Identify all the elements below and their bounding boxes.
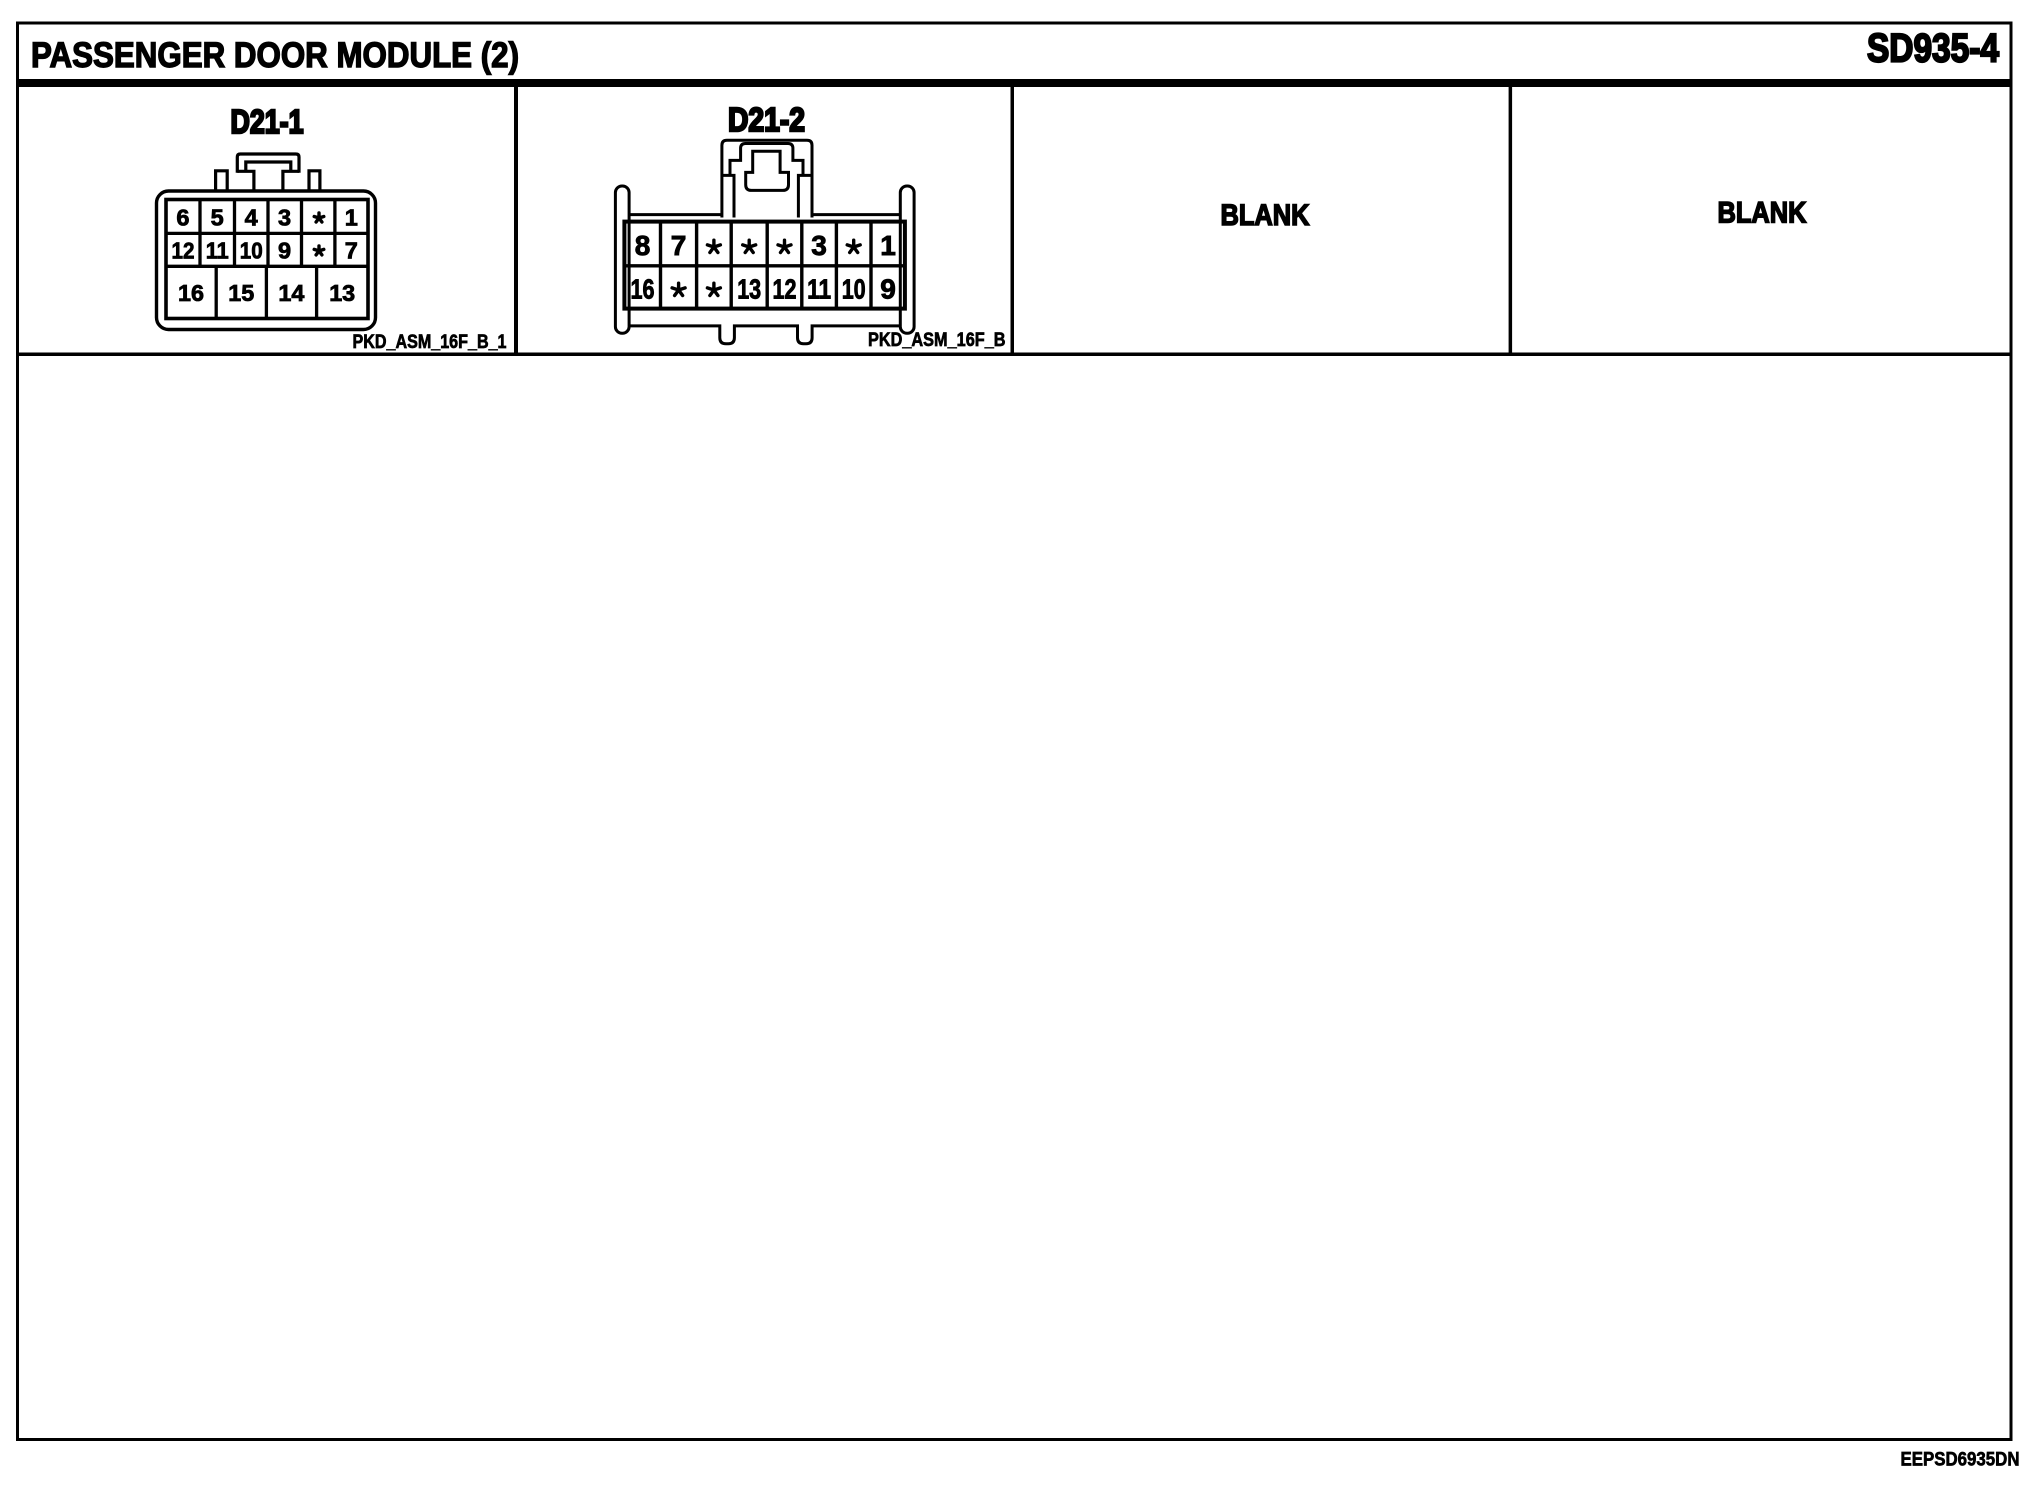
- svg-text:7: 7: [345, 238, 358, 264]
- svg-text:7: 7: [671, 230, 687, 261]
- svg-text:BLANK: BLANK: [1718, 197, 1807, 230]
- svg-text:11: 11: [807, 274, 831, 305]
- svg-text:15: 15: [228, 280, 254, 306]
- svg-text:12: 12: [773, 274, 797, 305]
- svg-text:8: 8: [635, 230, 651, 261]
- svg-text:PKD_ASM_16F_B_1: PKD_ASM_16F_B_1: [353, 332, 507, 353]
- svg-text:9: 9: [880, 274, 896, 305]
- svg-text:5: 5: [211, 204, 224, 230]
- svg-text:3: 3: [278, 204, 291, 230]
- svg-text:PASSENGER DOOR MODULE (2): PASSENGER DOOR MODULE (2): [31, 36, 519, 75]
- svg-text:10: 10: [240, 238, 263, 264]
- svg-text:16: 16: [631, 274, 655, 305]
- svg-text:14: 14: [278, 280, 304, 306]
- svg-text:EEPSD6935DN: EEPSD6935DN: [1901, 1449, 2020, 1471]
- svg-text:PKD_ASM_16F_B: PKD_ASM_16F_B: [868, 330, 1006, 351]
- svg-text:16: 16: [178, 280, 204, 306]
- svg-text:12: 12: [172, 238, 195, 264]
- svg-text:11: 11: [206, 238, 229, 264]
- svg-text:1: 1: [880, 230, 896, 261]
- svg-text:13: 13: [737, 274, 761, 305]
- svg-text:10: 10: [842, 274, 866, 305]
- svg-text:D21-2: D21-2: [728, 101, 805, 138]
- svg-text:3: 3: [811, 230, 827, 261]
- svg-text:BLANK: BLANK: [1221, 199, 1310, 232]
- svg-text:SD935-4: SD935-4: [1867, 27, 2000, 71]
- svg-text:13: 13: [329, 280, 355, 306]
- svg-text:4: 4: [245, 204, 258, 230]
- svg-text:1: 1: [345, 204, 358, 230]
- svg-text:9: 9: [278, 238, 291, 264]
- svg-text:D21-1: D21-1: [231, 103, 304, 140]
- svg-text:6: 6: [176, 204, 189, 230]
